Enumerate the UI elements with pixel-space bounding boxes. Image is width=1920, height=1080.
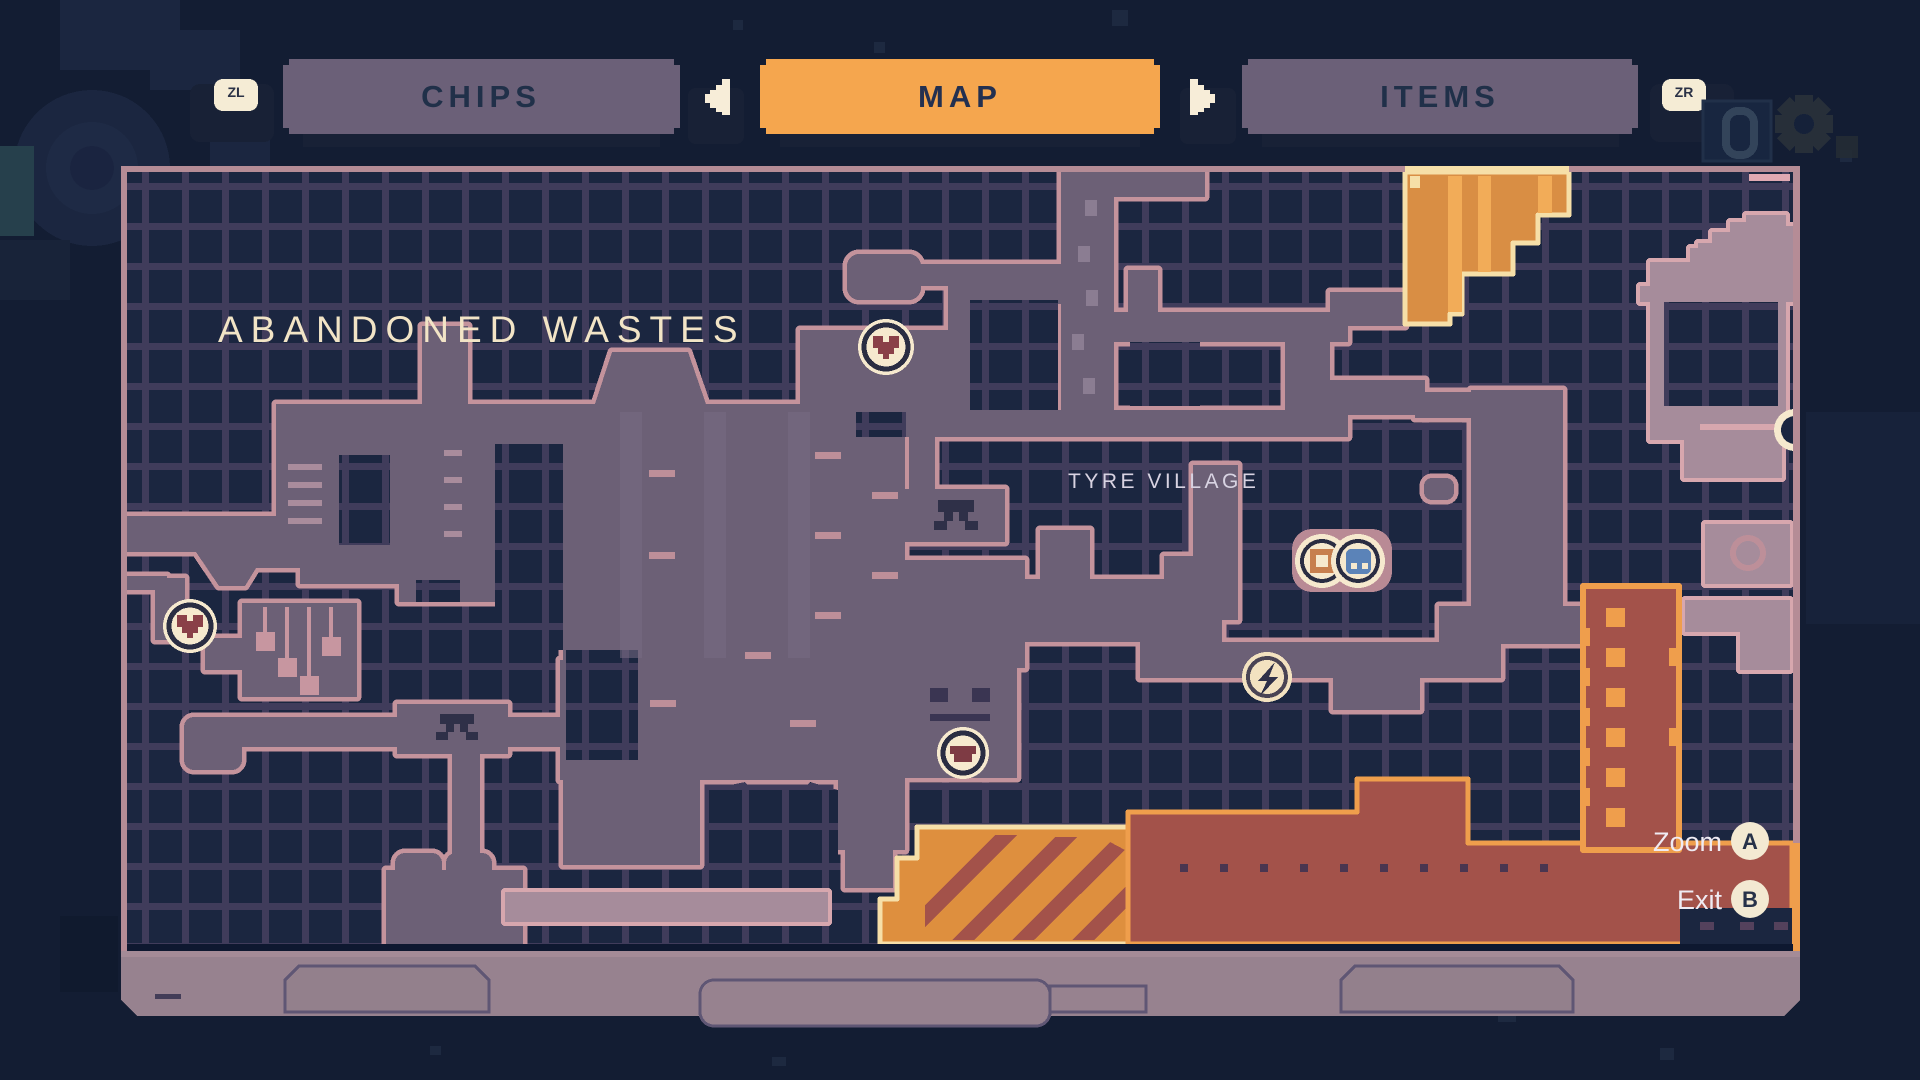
svg-text:TYRE VILLAGE: TYRE VILLAGE [1068,470,1259,493]
svg-text:ZL: ZL [227,84,245,100]
svg-text:Exit: Exit [1677,885,1723,915]
svg-text:A: A [1742,829,1758,854]
svg-text:ITEMS: ITEMS [1380,79,1500,114]
svg-text:ABANDONED WASTES: ABANDONED WASTES [218,309,746,350]
svg-text:MAP: MAP [918,79,1002,114]
svg-text:CHIPS: CHIPS [421,79,541,114]
svg-text:ZR: ZR [1675,84,1694,100]
svg-text:B: B [1742,887,1758,912]
svg-text:Zoom: Zoom [1653,827,1722,857]
